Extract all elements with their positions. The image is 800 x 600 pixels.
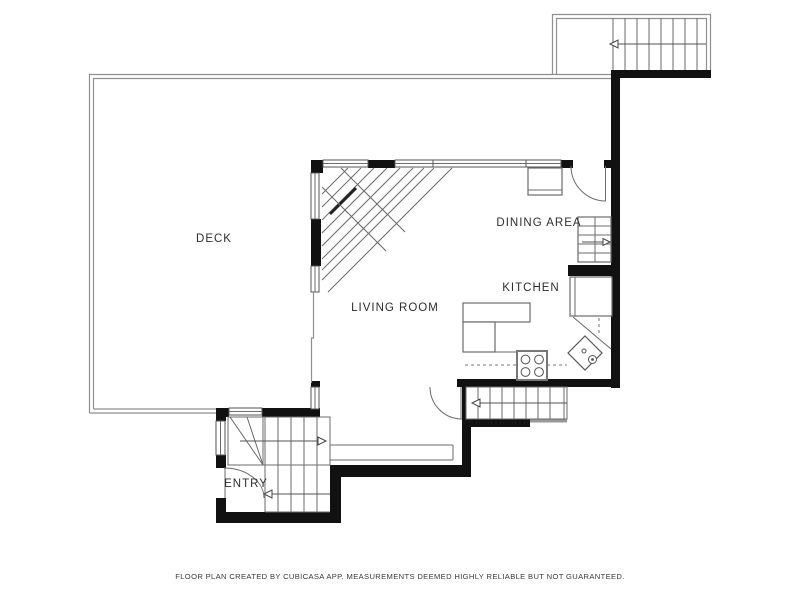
stair-direction-arrow-icon [610, 40, 618, 48]
window [229, 408, 262, 415]
window [216, 421, 225, 455]
footer-disclaimer: FLOOR PLAN CREATED BY CUBICASA APP. MEAS… [175, 572, 624, 581]
room-label-entry: ENTRY [224, 478, 268, 490]
floor-plan-canvas: DECK LIVING ROOM DINING AREA KITCHEN ENT… [0, 0, 800, 600]
stairs-top-right [610, 18, 706, 70]
room-label-kitchen: KITCHEN [502, 282, 559, 294]
kitchen-sink [568, 336, 602, 370]
window [433, 160, 526, 167]
landing-corridor [330, 445, 453, 460]
lower-stairs-door [430, 387, 462, 419]
window [311, 266, 319, 292]
room-label-living-room: LIVING ROOM [351, 302, 439, 314]
stairs-lower [466, 387, 567, 421]
window [311, 387, 319, 409]
kitchen-counter [463, 303, 530, 322]
window [526, 160, 561, 167]
room-label-dining-area: DINING AREA [496, 217, 581, 229]
stairs-living-room [322, 168, 452, 292]
stairs-dining [578, 217, 611, 262]
refrigerator [570, 277, 612, 316]
dining-door [571, 166, 606, 201]
window [395, 160, 433, 167]
floor-plan-page: DECK LIVING ROOM DINING AREA KITCHEN ENT… [0, 0, 800, 600]
stove [517, 351, 547, 380]
living-room-deck-railing [312, 292, 314, 383]
kitchen-counter [463, 322, 495, 352]
dining-cabinet [528, 168, 562, 195]
room-label-deck: DECK [196, 233, 232, 245]
window [311, 173, 319, 219]
stairs-entry [228, 417, 330, 512]
window [323, 160, 368, 167]
